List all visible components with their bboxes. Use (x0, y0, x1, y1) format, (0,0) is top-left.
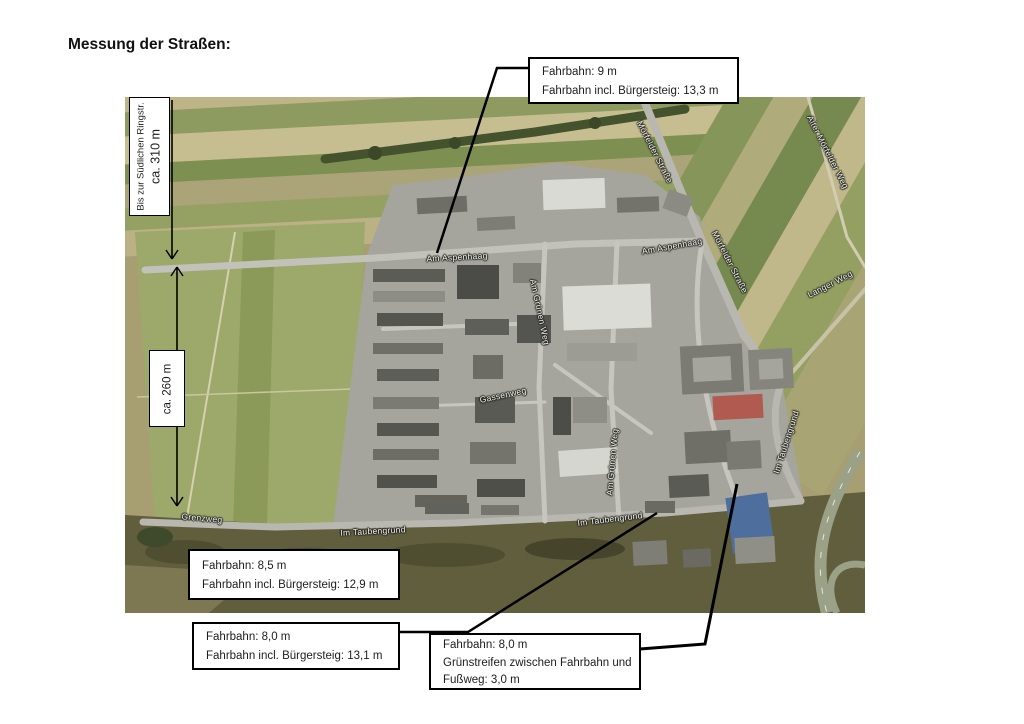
callout-top: Fahrbahn: 9 m Fahrbahn incl. Bürgersteig… (528, 57, 739, 104)
callout-bottom-right: Fahrbahn: 8,0 m Grünstreifen zwischen Fa… (429, 633, 641, 690)
callout-text: Fahrbahn incl. Bürgersteig: 13,1 m (194, 647, 398, 666)
measurement-260-value: ca. 260 m (161, 363, 173, 414)
measurement-box-260m: ca. 260 m (149, 350, 185, 427)
measurement-310-caption: Bis zur Südlichen Ringstr. (135, 102, 148, 210)
callout-text: Fahrbahn: 8,0 m (194, 628, 398, 647)
aerial-map-image: Am Aspenhaag Am Aspenhaag Mörfelder Stra… (125, 97, 865, 613)
callout-bottom-left: Fahrbahn: 8,5 m Fahrbahn incl. Bürgerste… (188, 549, 400, 600)
callout-text: Grünstreifen zwischen Fahrbahn und (431, 655, 639, 673)
callout-text: Fahrbahn: 8,5 m (190, 557, 398, 576)
callout-bottom-middle: Fahrbahn: 8,0 m Fahrbahn incl. Bürgerste… (192, 622, 400, 670)
callout-text: Fußweg: 3,0 m (431, 672, 639, 690)
callout-text: Fahrbahn: 8,0 m (431, 637, 639, 655)
page-title: Messung der Straßen: (68, 36, 231, 54)
document-page: Messung der Straßen: (0, 0, 1024, 724)
measurement-310-value: ca. 310 m (148, 102, 164, 210)
satellite-scene (125, 97, 865, 613)
callout-text: Fahrbahn incl. Bürgersteig: 12,9 m (190, 576, 398, 595)
measurement-box-310m: Bis zur Südlichen Ringstr. ca. 310 m (129, 97, 170, 216)
callout-text: Fahrbahn: 9 m (530, 63, 737, 82)
callout-text: Fahrbahn incl. Bürgersteig: 13,3 m (530, 82, 737, 101)
